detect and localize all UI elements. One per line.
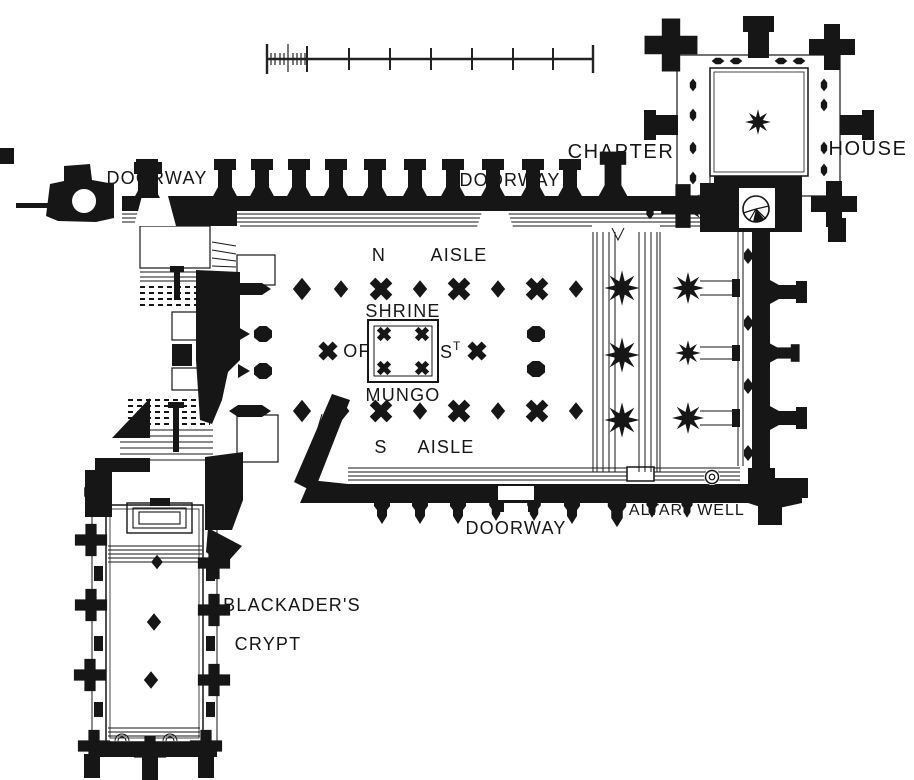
- label-doorway-north: DOORWAY: [459, 170, 560, 190]
- label-south-aisle-s: S: [374, 437, 387, 457]
- label-well: WELL: [697, 502, 745, 519]
- label-mungo: MUNGO: [366, 385, 441, 405]
- southwest-mass: [205, 452, 243, 530]
- east-chapels: [672, 272, 740, 434]
- shrine-enclosure: [368, 320, 438, 382]
- label-blackaders: BLACKADER'S: [223, 595, 361, 615]
- chapter-house-central-pier: [745, 109, 771, 135]
- east-wall: [738, 232, 807, 470]
- steps-band-east: [593, 232, 660, 472]
- label-north-aisle-n: N: [372, 245, 386, 265]
- north-doorway-opening: [477, 212, 513, 227]
- label-doorway-northwest: DOORWAY: [106, 168, 207, 188]
- chapter-house: [644, 16, 874, 242]
- altar: [627, 467, 654, 481]
- north-wall: [122, 152, 740, 240]
- scale-bar: [267, 44, 593, 74]
- south-doorway-opening: [498, 486, 534, 500]
- stair-southwest: [112, 398, 213, 460]
- label-st-s: S: [440, 342, 453, 362]
- spiral-stair: [739, 188, 775, 228]
- label-crypt: CRYPT: [235, 634, 302, 654]
- northeast-corner: [752, 232, 770, 258]
- floor-plan-page: DOORWAY DOORWAY N AISLE SHRINE OF S T MU…: [0, 0, 914, 780]
- nw-turret: [46, 164, 114, 222]
- floor-plan-svg: DOORWAY DOORWAY N AISLE SHRINE OF S T MU…: [0, 0, 914, 780]
- label-chapter: CHAPTER: [568, 141, 675, 163]
- label-house: HOUSE: [828, 138, 907, 160]
- label-shrine: SHRINE: [365, 301, 440, 321]
- label-st-t: T: [453, 339, 461, 353]
- label-doorway-south: DOORWAY: [465, 518, 566, 538]
- label-south-aisle-word: AISLE: [417, 437, 474, 457]
- blackaders-entrance-steps: [108, 498, 202, 562]
- label-of: OF: [343, 341, 370, 361]
- well: [704, 469, 720, 485]
- label-altar: ALTAR: [629, 502, 683, 519]
- blackaders-crypt: [74, 498, 230, 780]
- label-north-aisle-word: AISLE: [430, 245, 487, 265]
- south-wall: [84, 394, 808, 566]
